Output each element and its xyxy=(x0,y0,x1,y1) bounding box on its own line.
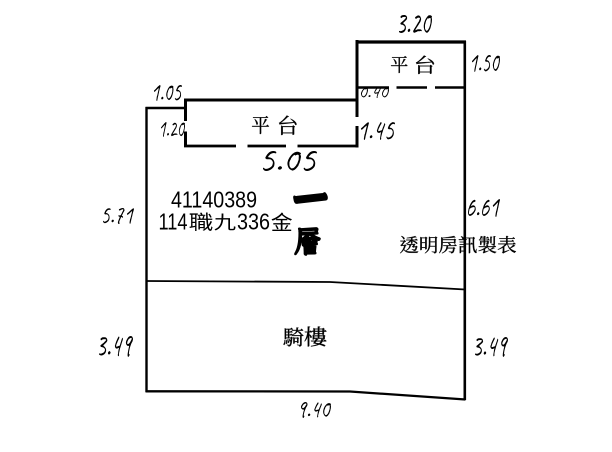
svg-text:336: 336 xyxy=(237,209,270,235)
svg-text:114: 114 xyxy=(159,209,188,235)
